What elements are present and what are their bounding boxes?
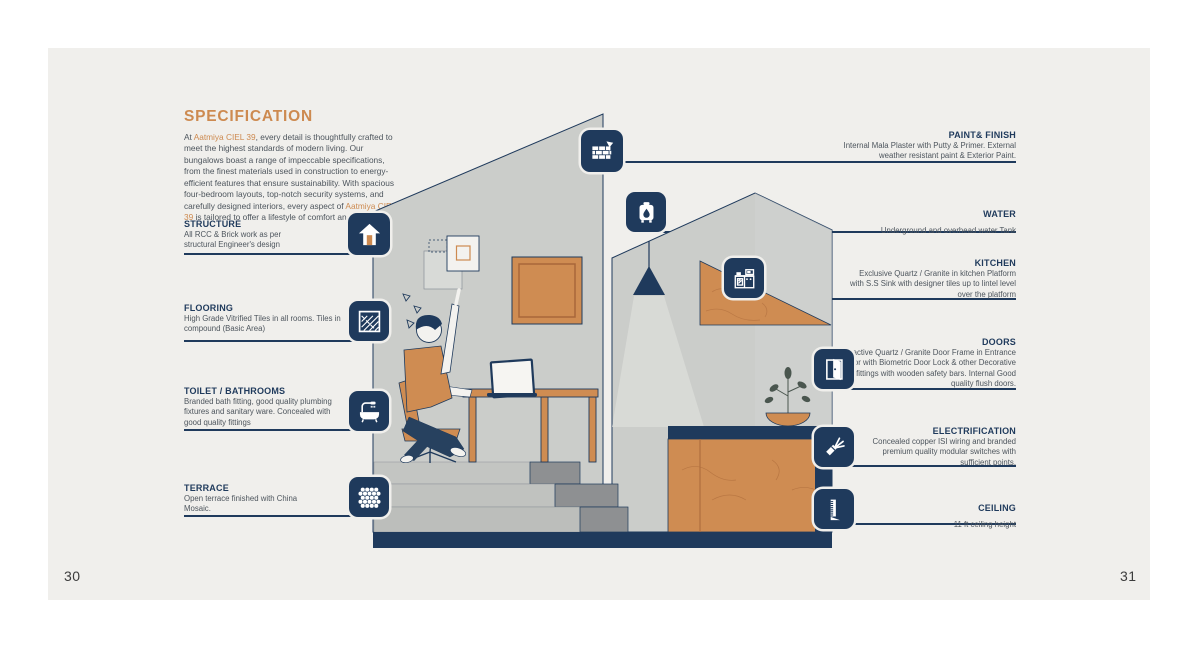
bathtub-shower-icon — [349, 391, 389, 431]
callout-paint-text: Internal Mala Plaster with Putty & Prime… — [816, 141, 1016, 162]
callout-terrace: TERRACE Open terrace finished with China… — [184, 483, 373, 517]
callout-terrace-text: Open terrace finished with China Mosaic. — [184, 494, 318, 515]
water-tank-icon — [626, 192, 666, 232]
callout-ceiling: CEILING 11 ft ceiling height — [852, 503, 1016, 525]
page-number-left: 30 — [64, 568, 81, 584]
brochure-spread: { "page": { "left_page_number": "30", "r… — [0, 0, 1200, 650]
callout-toilet-text: Branded bath fitting, good quality plumb… — [184, 397, 334, 428]
callout-flooring: FLOORING High Grade Vitrified Tiles in a… — [184, 303, 373, 342]
callout-flooring-title: FLOORING — [184, 303, 373, 313]
callout-electrification-title: ELECTRIFICATION — [852, 426, 1016, 436]
callout-toilet-bathrooms: TOILET / BATHROOMS Branded bath fitting,… — [184, 386, 373, 431]
callout-flooring-text: High Grade Vitrified Tiles in all rooms.… — [184, 314, 346, 335]
stripped-wire-icon — [814, 427, 854, 467]
callout-ceiling-title: CEILING — [852, 503, 1016, 513]
callout-ceiling-text: 11 ft ceiling height — [954, 520, 1016, 530]
open-door-icon — [814, 349, 854, 389]
page-number-right: 31 — [1120, 568, 1137, 584]
structure-arrow-icon — [348, 213, 390, 255]
callout-structure-title: STRUCTURE — [184, 219, 373, 229]
laptop — [487, 360, 537, 398]
brick-trowel-icon — [581, 130, 623, 172]
callout-toilet-title: TOILET / BATHROOMS — [184, 386, 373, 396]
callout-kitchen-text: Exclusive Quartz / Granite in kitchen Pl… — [848, 269, 1016, 300]
kitchen-counter — [668, 426, 832, 532]
floor-base — [373, 532, 832, 548]
herringbone-tiles-icon — [349, 301, 389, 341]
ruler-height-icon — [814, 489, 854, 529]
callout-doors-title: DOORS — [832, 337, 1016, 347]
callout-structure: STRUCTURE All RCC & Brick work as per st… — [184, 219, 373, 255]
callout-structure-text: All RCC & Brick work as per structural E… — [184, 230, 302, 251]
callout-doors: DOORS Attractive Quartz / Granite Door F… — [832, 337, 1016, 390]
callout-electrification: ELECTRIFICATION Concealed copper ISI wir… — [852, 426, 1016, 467]
callout-doors-text: Attractive Quartz / Granite Door Frame i… — [838, 348, 1016, 389]
callout-water-text: Underground and overhead water Tank — [881, 226, 1016, 236]
callout-terrace-title: TERRACE — [184, 483, 373, 493]
mosaic-hex-icon — [349, 477, 389, 517]
kitchen-counter-icon — [724, 258, 764, 298]
callout-electrification-text: Concealed copper ISI wiring and branded … — [856, 437, 1016, 468]
